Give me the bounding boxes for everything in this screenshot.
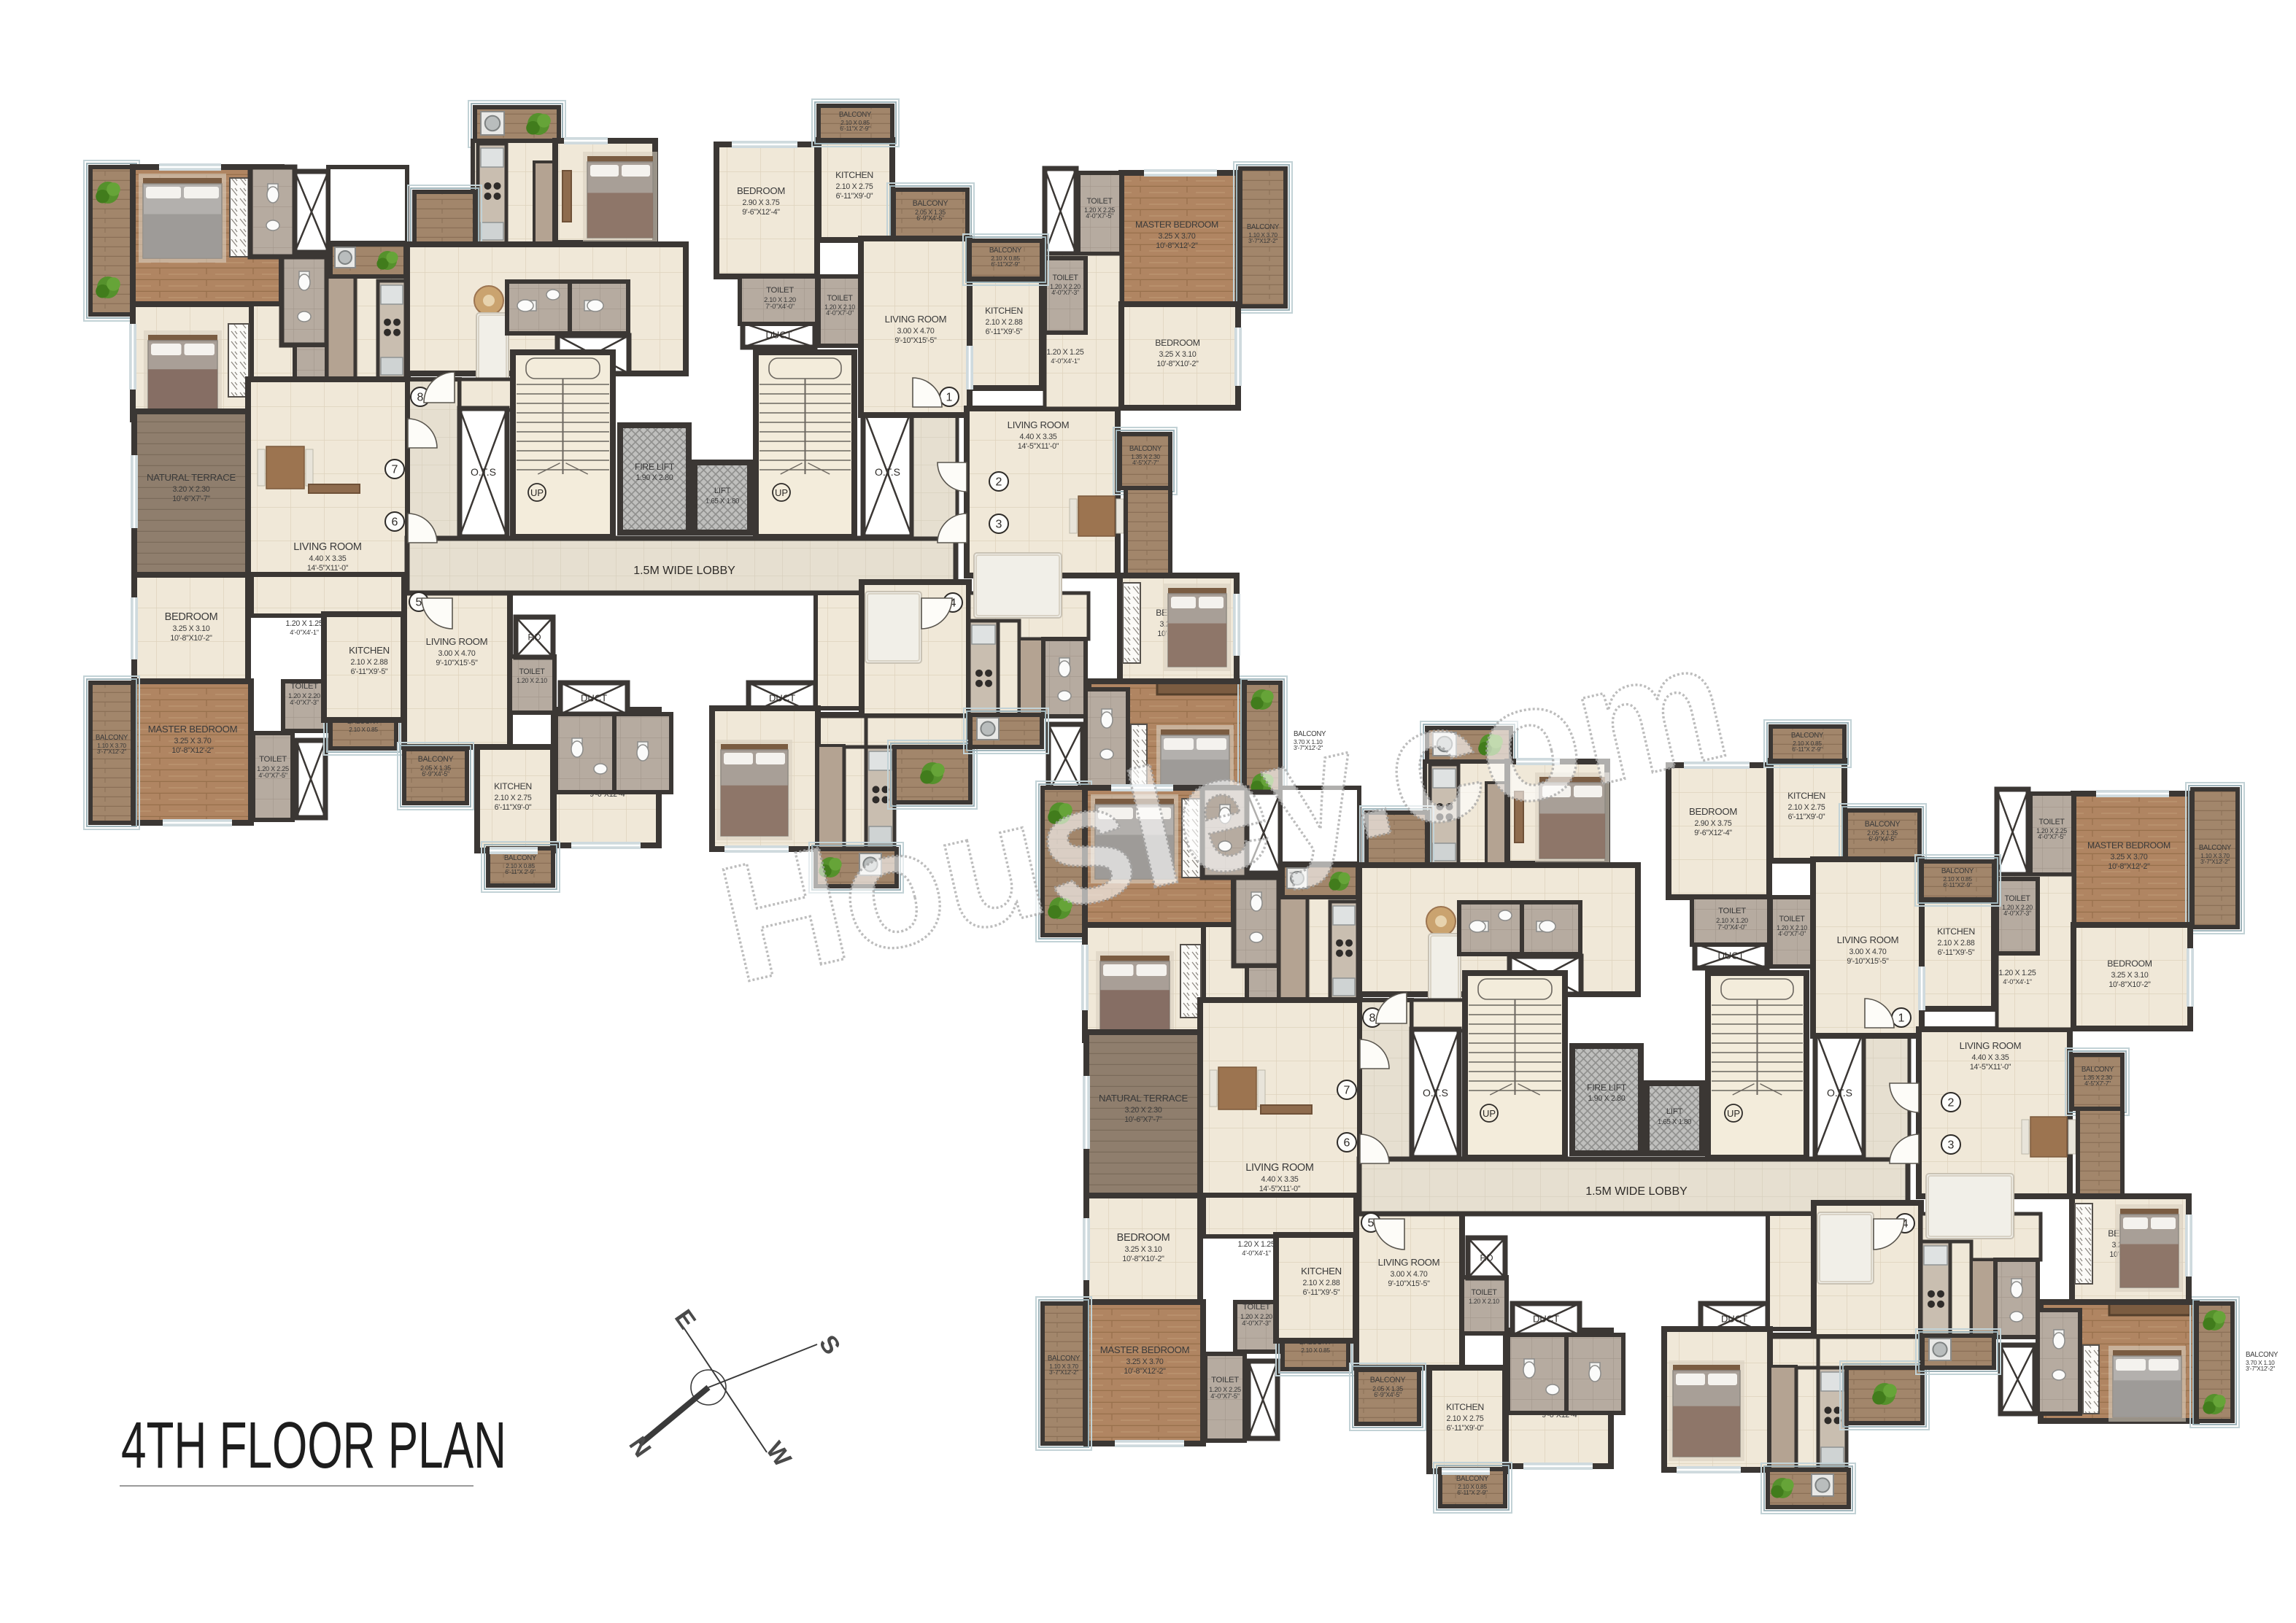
- svg-text:7'-0"X4'-0": 7'-0"X4'-0": [1717, 923, 1746, 931]
- svg-text:DUCT: DUCT: [1721, 1314, 1747, 1325]
- svg-text:6'-11"X 2'-9": 6'-11"X 2'-9": [1457, 1489, 1488, 1496]
- svg-text:BALCONY: BALCONY: [839, 111, 872, 119]
- svg-text:BEDROOM: BEDROOM: [165, 611, 218, 623]
- svg-text:7: 7: [392, 464, 398, 476]
- svg-text:2.10 X 2.88: 2.10 X 2.88: [986, 318, 1023, 327]
- svg-text:3.25 X 3.70: 3.25 X 3.70: [1126, 1357, 1164, 1366]
- svg-text:KITCHEN: KITCHEN: [985, 306, 1023, 316]
- svg-text:3: 3: [1948, 1139, 1955, 1152]
- svg-text:4'-0"X7'-5": 4'-0"X7'-5": [258, 772, 287, 779]
- svg-text:1: 1: [1898, 1012, 1905, 1025]
- svg-text:O.T.S: O.T.S: [875, 466, 900, 478]
- svg-text:2.10 X 2.75: 2.10 X 2.75: [1447, 1414, 1484, 1423]
- svg-text:9'-10"X15'-5": 9'-10"X15'-5": [1847, 957, 1889, 966]
- svg-text:TOILET: TOILET: [1052, 274, 1078, 282]
- svg-text:BEDROOM: BEDROOM: [1689, 806, 1737, 817]
- svg-text:LIVING ROOM: LIVING ROOM: [885, 314, 947, 325]
- svg-text:4.40 X 3.35: 4.40 X 3.35: [309, 554, 347, 563]
- svg-text:KITCHEN: KITCHEN: [494, 781, 532, 791]
- svg-text:BALCONY: BALCONY: [1129, 445, 1162, 453]
- svg-text:9'-10"X15'-5": 9'-10"X15'-5": [894, 336, 937, 345]
- svg-text:3.25 X 3.10: 3.25 X 3.10: [2111, 971, 2149, 980]
- svg-text:4'-0"X7'-3": 4'-0"X7'-3": [290, 699, 318, 706]
- svg-text:LIFT: LIFT: [1666, 1107, 1683, 1116]
- svg-text:2.10 X 0.85: 2.10 X 0.85: [1301, 1347, 1330, 1354]
- svg-text:1.90 X 2.80: 1.90 X 2.80: [1588, 1094, 1626, 1103]
- svg-text:BEDROOM: BEDROOM: [1155, 338, 1199, 348]
- svg-text:6'-9"X4'-5": 6'-9"X4'-5": [1868, 835, 1896, 843]
- svg-text:14'-5"X11'-0": 14'-5"X11'-0": [1970, 1063, 2011, 1072]
- svg-text:3.25 X 3.10: 3.25 X 3.10: [1159, 350, 1197, 359]
- svg-text:LIVING ROOM: LIVING ROOM: [1378, 1257, 1440, 1268]
- svg-text:MASTER BEDROOM: MASTER BEDROOM: [1100, 1344, 1190, 1355]
- svg-text:BEDROOM: BEDROOM: [2107, 958, 2152, 969]
- svg-text:6'-9"X4'-5": 6'-9"X4'-5": [422, 770, 449, 778]
- svg-text:6'-11"X9'-0": 6'-11"X9'-0": [1447, 1424, 1484, 1433]
- svg-text:4'-0"X4'-1": 4'-0"X4'-1": [2003, 978, 2031, 985]
- svg-text:2: 2: [996, 476, 1002, 489]
- svg-text:TOILET: TOILET: [2004, 894, 2030, 903]
- svg-text:BALCONY: BALCONY: [1456, 1475, 1489, 1483]
- svg-text:1.20 X 1.25: 1.20 X 1.25: [1999, 969, 2036, 977]
- svg-text:7: 7: [1344, 1085, 1350, 1097]
- svg-text:FIRE LIFT: FIRE LIFT: [635, 462, 675, 472]
- svg-text:UP: UP: [775, 487, 788, 498]
- svg-text:7'-0"X4'-0": 7'-0"X4'-0": [765, 303, 794, 310]
- svg-text:6'-11"X 2'-9": 6'-11"X 2'-9": [505, 868, 536, 875]
- svg-text:4'-0"X7'-5": 4'-0"X7'-5": [1210, 1392, 1239, 1400]
- svg-text:6'-11"X9'-5": 6'-11"X9'-5": [1938, 948, 1975, 957]
- svg-text:3.00 X 4.70: 3.00 X 4.70: [1849, 948, 1887, 956]
- svg-text:6'-11"X2'-9": 6'-11"X2'-9": [991, 260, 1020, 268]
- svg-text:UP: UP: [530, 487, 544, 498]
- svg-text:6'-11"X9'-0": 6'-11"X9'-0": [1788, 813, 1825, 821]
- svg-text:BALCONY: BALCONY: [1865, 820, 1901, 829]
- svg-text:2.10 X 2.88: 2.10 X 2.88: [1938, 939, 1975, 948]
- svg-text:1.65 X 1.80: 1.65 X 1.80: [1658, 1118, 1692, 1126]
- svg-text:TOILET: TOILET: [1779, 915, 1805, 923]
- svg-text:LIVING ROOM: LIVING ROOM: [293, 541, 361, 553]
- svg-text:TOILET: TOILET: [1718, 907, 1746, 915]
- svg-text:5: 5: [416, 597, 422, 609]
- svg-text:LIFT: LIFT: [714, 487, 731, 495]
- svg-text:KITCHEN: KITCHEN: [1787, 791, 1825, 801]
- svg-text:6'-11"X9'-0": 6'-11"X9'-0": [836, 192, 873, 201]
- svg-text:14'-5"X11'-0": 14'-5"X11'-0": [307, 564, 349, 573]
- svg-text:NATURAL TERRACE: NATURAL TERRACE: [147, 472, 236, 483]
- svg-text:4'-0"X7'-0": 4'-0"X7'-0": [826, 309, 854, 317]
- svg-text:3'-7"X12'-2": 3'-7"X12'-2": [2200, 858, 2230, 865]
- svg-text:BALCONY: BALCONY: [1247, 223, 1280, 231]
- svg-text:10'-8"X10'-2": 10'-8"X10'-2": [2108, 980, 2151, 989]
- svg-text:1: 1: [946, 392, 953, 404]
- svg-text:6'-11"X9'-5": 6'-11"X9'-5": [351, 667, 388, 676]
- svg-text:10'-8"X12'-2": 10'-8"X12'-2": [171, 746, 214, 755]
- svg-text:2: 2: [1948, 1097, 1955, 1109]
- svg-text:DUCT: DUCT: [1533, 1314, 1559, 1325]
- svg-text:DUCT: DUCT: [1717, 950, 1744, 961]
- svg-text:O.T.S: O.T.S: [1827, 1087, 1852, 1099]
- svg-text:2.10 X 2.75: 2.10 X 2.75: [836, 182, 873, 191]
- svg-text:TOILET: TOILET: [1242, 1303, 1270, 1312]
- svg-text:6'-11"X9'-5": 6'-11"X9'-5": [986, 328, 1023, 336]
- svg-text:2.10 X 2.75: 2.10 X 2.75: [1788, 803, 1825, 812]
- svg-text:TOILET: TOILET: [827, 294, 853, 303]
- svg-text:O.T.S: O.T.S: [471, 466, 496, 478]
- svg-text:2.10 X 2.88: 2.10 X 2.88: [351, 658, 388, 667]
- svg-text:TOILET: TOILET: [1471, 1288, 1497, 1297]
- svg-text:6: 6: [392, 516, 398, 529]
- svg-text:3.25 X 3.70: 3.25 X 3.70: [1159, 232, 1196, 241]
- svg-text:TOILET: TOILET: [519, 667, 545, 676]
- svg-text:6'-11"X 2'-9": 6'-11"X 2'-9": [840, 125, 870, 132]
- svg-text:3.25 X 3.70: 3.25 X 3.70: [174, 737, 212, 745]
- svg-text:O.T.S: O.T.S: [1423, 1087, 1448, 1099]
- svg-text:BALCONY: BALCONY: [504, 854, 537, 862]
- svg-text:LIVING ROOM: LIVING ROOM: [1960, 1040, 2022, 1051]
- svg-text:6'-11"X9'-5": 6'-11"X9'-5": [1303, 1288, 1340, 1297]
- svg-text:LIVING ROOM: LIVING ROOM: [1837, 934, 1899, 945]
- svg-text:DUCT: DUCT: [765, 330, 792, 341]
- svg-text:3.00 X 4.70: 3.00 X 4.70: [438, 649, 476, 658]
- svg-text:2.90 X 3.75: 2.90 X 3.75: [1695, 819, 1732, 828]
- svg-text:3'-7"X12'-2": 3'-7"X12'-2": [97, 748, 126, 755]
- svg-text:3: 3: [996, 519, 1002, 531]
- svg-text:2.10 X 2.75: 2.10 X 2.75: [495, 794, 532, 802]
- svg-text:4'-0"X7'-3": 4'-0"X7'-3": [1242, 1320, 1270, 1327]
- svg-text:KITCHEN: KITCHEN: [1446, 1402, 1484, 1412]
- svg-text:4'-5"X7'-7": 4'-5"X7'-7": [1132, 459, 1159, 466]
- svg-text:14'-5"X11'-0": 14'-5"X11'-0": [1259, 1185, 1301, 1193]
- svg-text:4'-0"X4'-1": 4'-0"X4'-1": [1051, 357, 1079, 365]
- svg-text:BALCONY: BALCONY: [1048, 1355, 1081, 1363]
- svg-text:2.10 X 0.85: 2.10 X 0.85: [349, 726, 378, 733]
- svg-text:F.D: F.D: [1480, 1253, 1493, 1263]
- svg-text:1.5M WIDE LOBBY: 1.5M WIDE LOBBY: [633, 565, 735, 577]
- svg-text:TOILET: TOILET: [259, 755, 287, 764]
- svg-text:3.20 X 2.30: 3.20 X 2.30: [173, 485, 210, 494]
- svg-text:DUCT: DUCT: [769, 693, 795, 704]
- svg-text:2.10 X 2.88: 2.10 X 2.88: [1303, 1279, 1340, 1287]
- svg-text:1.20 X 2.10: 1.20 X 2.10: [517, 677, 547, 684]
- svg-text:MASTER BEDROOM: MASTER BEDROOM: [1135, 220, 1218, 230]
- svg-text:TOILET: TOILET: [1211, 1376, 1239, 1384]
- svg-text:4TH FLOOR PLAN: 4TH FLOOR PLAN: [121, 1409, 506, 1482]
- svg-text:BALCONY: BALCONY: [418, 755, 454, 764]
- svg-text:BALCONY: BALCONY: [913, 199, 948, 208]
- svg-text:14'-5"X11'-0": 14'-5"X11'-0": [1018, 442, 1059, 451]
- svg-text:BALCONY: BALCONY: [96, 734, 128, 742]
- svg-text:BALCONY: BALCONY: [2246, 1351, 2278, 1359]
- svg-text:TOILET: TOILET: [2038, 818, 2065, 826]
- svg-text:4'-0"X7'-0": 4'-0"X7'-0": [1778, 930, 1806, 937]
- svg-text:3.25 X 3.70: 3.25 X 3.70: [2111, 853, 2148, 861]
- svg-text:MASTER BEDROOM: MASTER BEDROOM: [148, 724, 238, 735]
- svg-text:4'-0"X7'-5": 4'-0"X7'-5": [2038, 833, 2065, 840]
- svg-text:BALCONY: BALCONY: [2082, 1066, 2114, 1074]
- svg-text:KITCHEN: KITCHEN: [1937, 926, 1975, 937]
- svg-text:10'-8"X12'-2": 10'-8"X12'-2": [1156, 241, 1198, 250]
- svg-text:KITCHEN: KITCHEN: [835, 170, 873, 180]
- svg-text:1.20 X 1.25: 1.20 X 1.25: [1238, 1240, 1275, 1249]
- svg-text:5: 5: [1368, 1217, 1375, 1230]
- svg-text:4'-0"X4'-1": 4'-0"X4'-1": [1242, 1250, 1270, 1257]
- svg-text:FIRE LIFT: FIRE LIFT: [1587, 1082, 1627, 1093]
- svg-text:10'-8"X10'-2": 10'-8"X10'-2": [1156, 360, 1199, 368]
- svg-text:3.25 X 3.10: 3.25 X 3.10: [173, 624, 210, 633]
- svg-text:BEDROOM: BEDROOM: [737, 185, 785, 196]
- svg-text:BALCONY: BALCONY: [2199, 844, 2232, 852]
- svg-text:LIVING ROOM: LIVING ROOM: [426, 636, 488, 647]
- svg-text:1.5M WIDE LOBBY: 1.5M WIDE LOBBY: [1585, 1185, 1688, 1198]
- svg-text:4'-0"X4'-1": 4'-0"X4'-1": [290, 629, 318, 636]
- svg-text:3.20 X 2.30: 3.20 X 2.30: [1125, 1106, 1162, 1115]
- svg-text:6'-9"X4'-5": 6'-9"X4'-5": [1374, 1391, 1402, 1398]
- svg-text:3'-7"X12'-2": 3'-7"X12'-2": [1049, 1368, 1078, 1376]
- svg-text:10'-8"X12'-2": 10'-8"X12'-2": [1124, 1367, 1166, 1376]
- svg-text:4'-5"X7'-7": 4'-5"X7'-7": [2084, 1080, 2111, 1087]
- svg-text:10'-8"X10'-2": 10'-8"X10'-2": [1122, 1255, 1164, 1263]
- svg-text:BALCONY: BALCONY: [1941, 867, 1974, 875]
- svg-text:1.65 X 1.80: 1.65 X 1.80: [706, 497, 740, 506]
- svg-text:LIVING ROOM: LIVING ROOM: [1245, 1162, 1313, 1174]
- svg-text:4'-0"X7'-5": 4'-0"X7'-5": [1086, 212, 1113, 220]
- svg-text:BEDROOM: BEDROOM: [1117, 1232, 1170, 1244]
- svg-text:8: 8: [1369, 1012, 1376, 1025]
- svg-text:6'-11"X2'-9": 6'-11"X2'-9": [1943, 881, 1972, 888]
- svg-text:6'-9"X4'-5": 6'-9"X4'-5": [916, 214, 944, 222]
- svg-text:3.00 X 4.70: 3.00 X 4.70: [897, 327, 935, 336]
- svg-text:UP: UP: [1727, 1108, 1740, 1119]
- svg-text:BALCONY: BALCONY: [989, 247, 1022, 255]
- svg-text:9'-6"X12'-4": 9'-6"X12'-4": [1694, 829, 1732, 837]
- svg-text:10'-8"X12'-2": 10'-8"X12'-2": [2108, 862, 2150, 871]
- svg-text:3.25 X 3.10: 3.25 X 3.10: [1125, 1245, 1162, 1254]
- svg-text:4.40 X 3.35: 4.40 X 3.35: [1020, 433, 1057, 441]
- svg-text:BALCONY: BALCONY: [1791, 732, 1824, 740]
- svg-text:9'-6"X12'-4": 9'-6"X12'-4": [742, 208, 780, 217]
- svg-text:F.D: F.D: [528, 632, 541, 643]
- svg-text:4'-0"X7'-3": 4'-0"X7'-3": [2003, 910, 2031, 917]
- svg-text:1.20 X 1.25: 1.20 X 1.25: [1047, 348, 1084, 357]
- svg-text:NATURAL TERRACE: NATURAL TERRACE: [1099, 1093, 1188, 1104]
- svg-text:UP: UP: [1483, 1108, 1496, 1119]
- svg-text:10'-6"X7'-7": 10'-6"X7'-7": [1124, 1115, 1162, 1124]
- svg-text:KITCHEN: KITCHEN: [1301, 1266, 1342, 1277]
- svg-text:TOILET: TOILET: [290, 682, 318, 691]
- svg-text:1.90 X 2.80: 1.90 X 2.80: [636, 473, 673, 482]
- svg-text:TOILET: TOILET: [766, 286, 794, 295]
- svg-text:DUCT: DUCT: [581, 693, 607, 704]
- svg-text:9'-10"X15'-5": 9'-10"X15'-5": [1388, 1279, 1430, 1288]
- svg-text:1.20 X 2.10: 1.20 X 2.10: [1469, 1298, 1499, 1305]
- svg-text:LIVING ROOM: LIVING ROOM: [1008, 419, 1070, 430]
- svg-text:4'-0"X7'-3": 4'-0"X7'-3": [1051, 289, 1079, 296]
- svg-text:9'-10"X15'-5": 9'-10"X15'-5": [436, 659, 478, 667]
- svg-text:BALCONY: BALCONY: [1370, 1376, 1406, 1384]
- svg-text:TOILET: TOILET: [1086, 197, 1113, 206]
- svg-text:6'-11"X9'-0": 6'-11"X9'-0": [495, 803, 532, 812]
- svg-text:1.20 X 1.25: 1.20 X 1.25: [286, 619, 323, 628]
- svg-text:8: 8: [417, 392, 424, 404]
- svg-text:10'-8"X10'-2": 10'-8"X10'-2": [170, 634, 212, 643]
- svg-text:3'-7"X12'-2": 3'-7"X12'-2": [1248, 237, 1278, 244]
- svg-text:3'-7"X12'-2": 3'-7"X12'-2": [2246, 1365, 2275, 1372]
- svg-text:2.90 X 3.75: 2.90 X 3.75: [743, 198, 780, 207]
- svg-text:MASTER BEDROOM: MASTER BEDROOM: [2087, 840, 2171, 851]
- svg-text:4.40 X 3.35: 4.40 X 3.35: [1972, 1053, 2009, 1062]
- svg-text:3.00 X 4.70: 3.00 X 4.70: [1391, 1270, 1428, 1279]
- svg-text:4.40 X 3.35: 4.40 X 3.35: [1261, 1175, 1299, 1184]
- svg-text:KITCHEN: KITCHEN: [349, 645, 390, 656]
- svg-text:10'-6"X7'-7": 10'-6"X7'-7": [172, 495, 210, 503]
- svg-text:6'-11"X 2'-9": 6'-11"X 2'-9": [1792, 745, 1823, 753]
- svg-text:6: 6: [1344, 1137, 1350, 1150]
